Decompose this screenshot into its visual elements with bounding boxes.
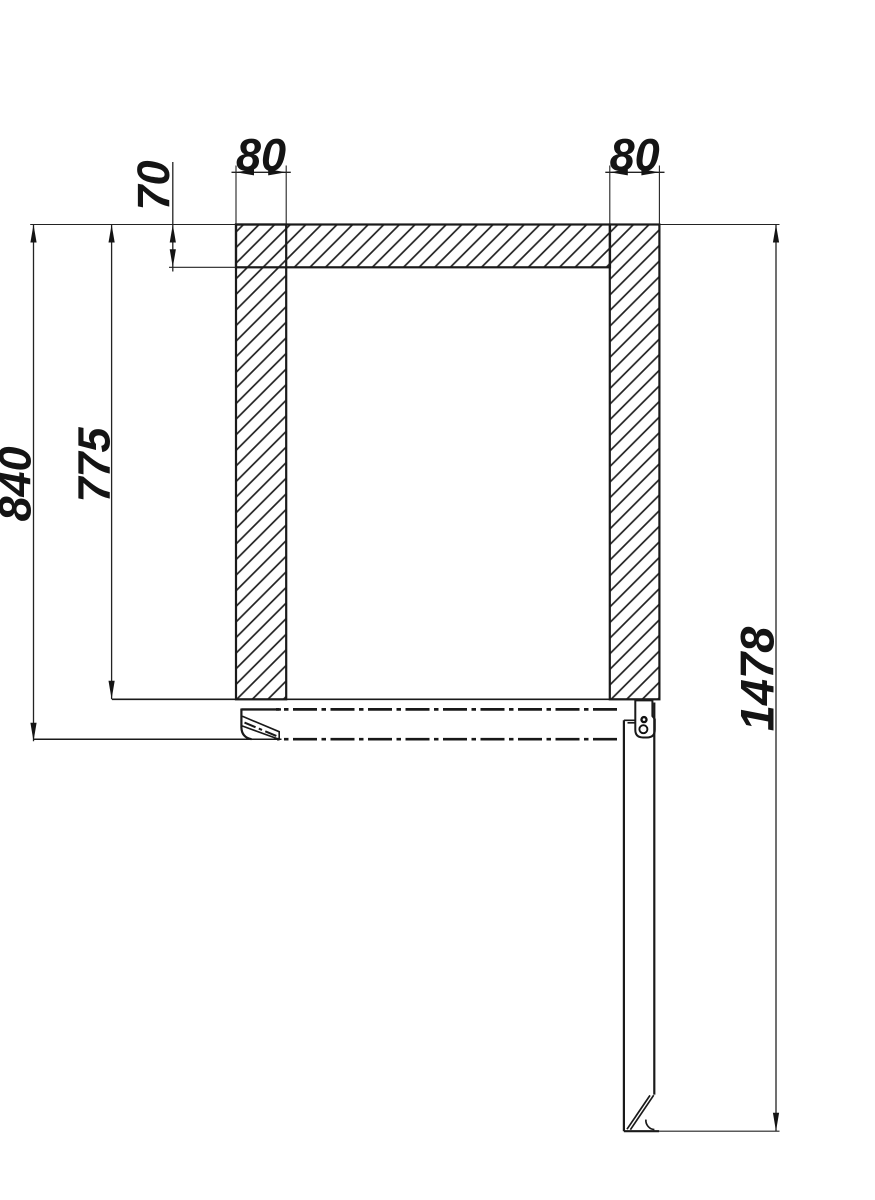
svg-text:1478: 1478 [731, 626, 784, 731]
svg-text:80: 80 [610, 129, 660, 180]
svg-text:840: 840 [0, 446, 41, 521]
svg-text:70: 70 [128, 160, 179, 210]
svg-text:80: 80 [236, 129, 286, 180]
svg-text:775: 775 [69, 426, 120, 502]
